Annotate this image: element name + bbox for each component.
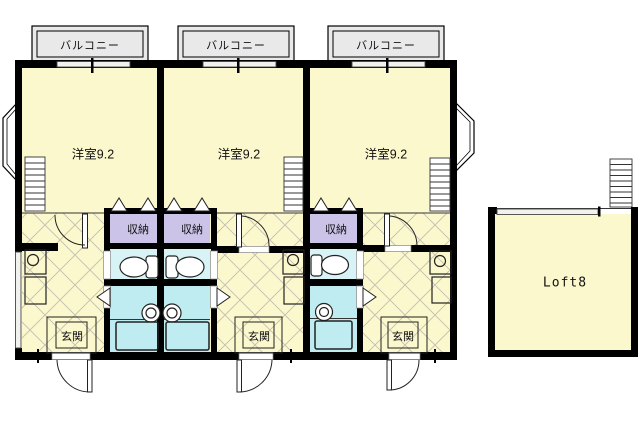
balcony-label-3: バルコニー: [356, 37, 416, 53]
entrance-door-unit1: [57, 360, 92, 392]
storage-label-2: 収納: [181, 221, 203, 237]
bay-window-left: [3, 104, 16, 180]
loft8-label: Loft8: [543, 276, 587, 291]
toilet-icon-unit1: [120, 256, 158, 278]
entrance-label-2: 玄関: [248, 328, 270, 344]
loft-ladder-unit3: [430, 158, 450, 211]
bay-window-right: [456, 103, 474, 171]
entrance-label-3: 玄関: [392, 328, 414, 344]
loft-ladder-unit2: [284, 157, 303, 211]
room-label-3: 洋室9.2: [365, 144, 407, 163]
balcony-label-1: バルコニー: [60, 37, 120, 53]
toilet-icon-unit3: [311, 255, 349, 276]
entrance-door-unit2: [237, 360, 272, 392]
room-label-1: 洋室9.2: [72, 144, 114, 163]
balcony-label-2: バルコニー: [206, 37, 266, 53]
floor-plan-drawing: [0, 0, 640, 425]
floor-fills: [22, 67, 450, 352]
room-label-2: 洋室9.2: [218, 144, 260, 163]
window-loft8: [497, 209, 598, 215]
loft-ladder-loft8: [610, 159, 632, 207]
storage-label-3: 収納: [325, 221, 347, 237]
entrance-door-unit3: [387, 360, 419, 390]
entrance-label-1: 玄関: [61, 328, 83, 344]
floor-plan: バルコニー バルコニー バルコニー 洋室9.2 洋室9.2 洋室9.2 収納 収…: [0, 0, 640, 425]
toilet-icon-unit2: [166, 256, 204, 278]
loft-ladder-unit1: [25, 157, 45, 211]
storage-label-1: 収納: [127, 221, 149, 237]
window-left-wall: [16, 252, 22, 348]
